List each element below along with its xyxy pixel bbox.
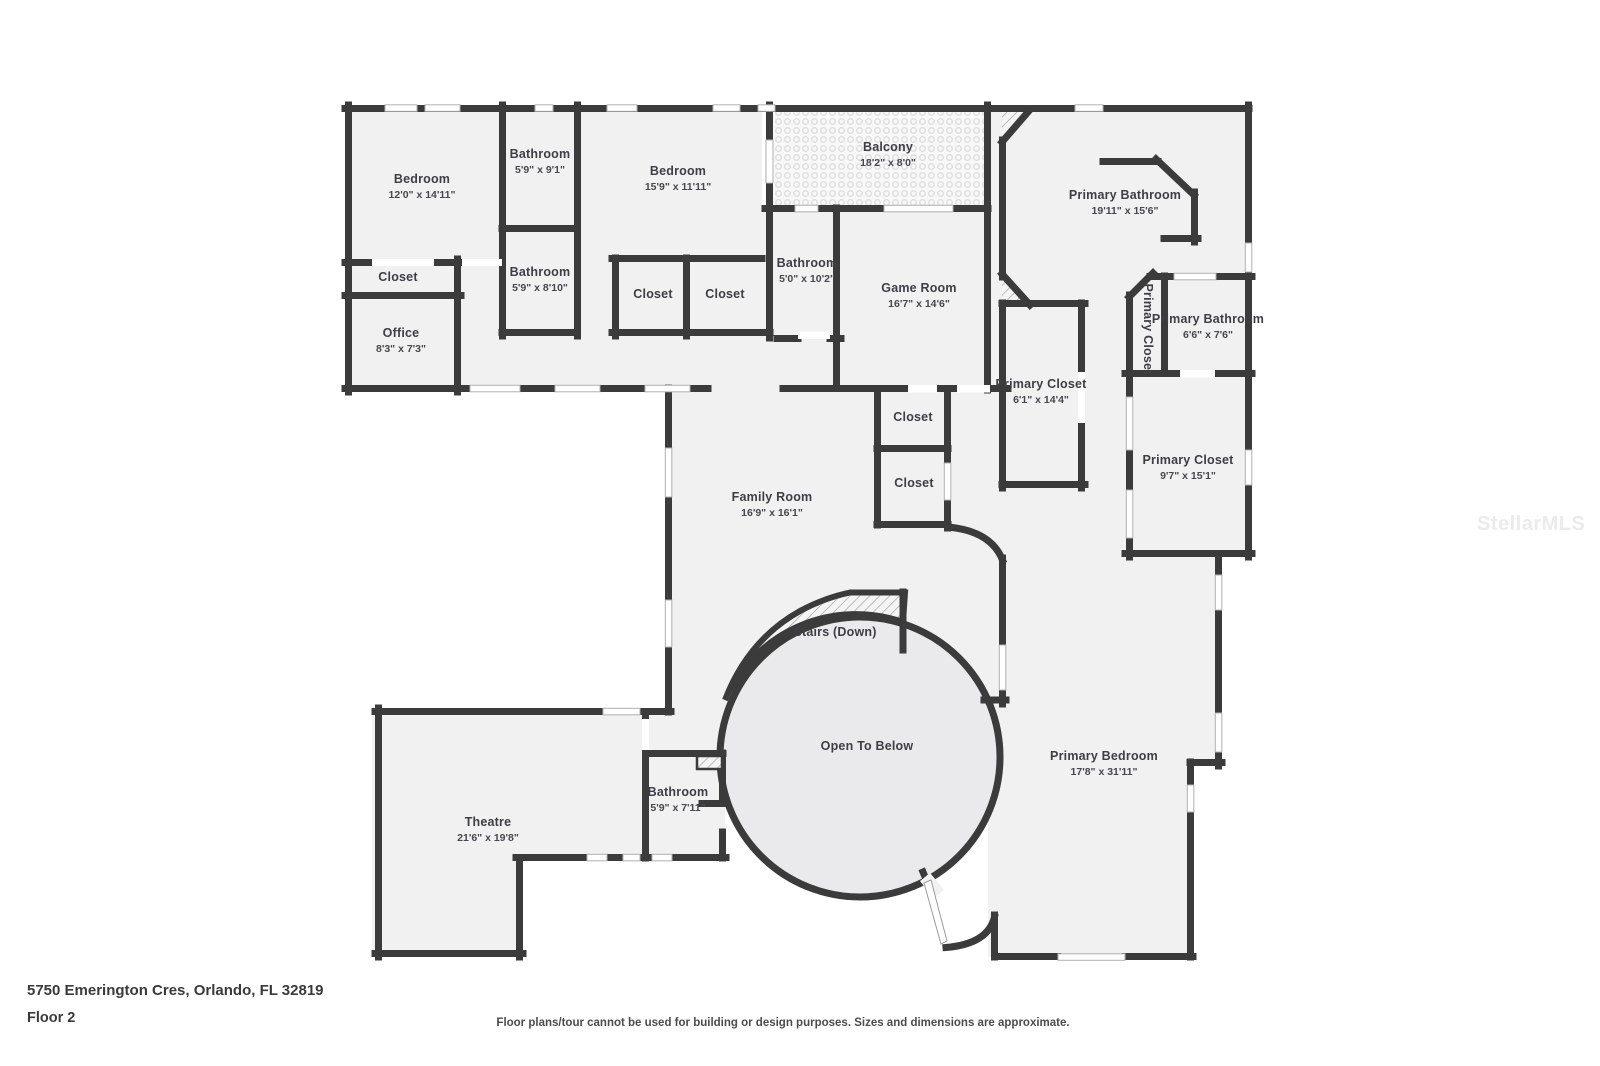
watermark: StellarMLS (1477, 513, 1585, 536)
floor-plan-canvas (0, 0, 1600, 1066)
shower-hatch (697, 756, 722, 769)
balcony-deck (765, 108, 988, 208)
floor-label: Floor 2 (27, 1010, 75, 1026)
rotunda-wall (720, 617, 1000, 897)
disclaimer-text: Floor plans/tour cannot be used for buil… (496, 1017, 1069, 1029)
floor-plan-page: Bedroom12'0" x 14'11"Bathroom5'9" x 9'1"… (0, 0, 1600, 1066)
address-label: 5750 Emerington Cres, Orlando, FL 32819 (27, 982, 324, 999)
